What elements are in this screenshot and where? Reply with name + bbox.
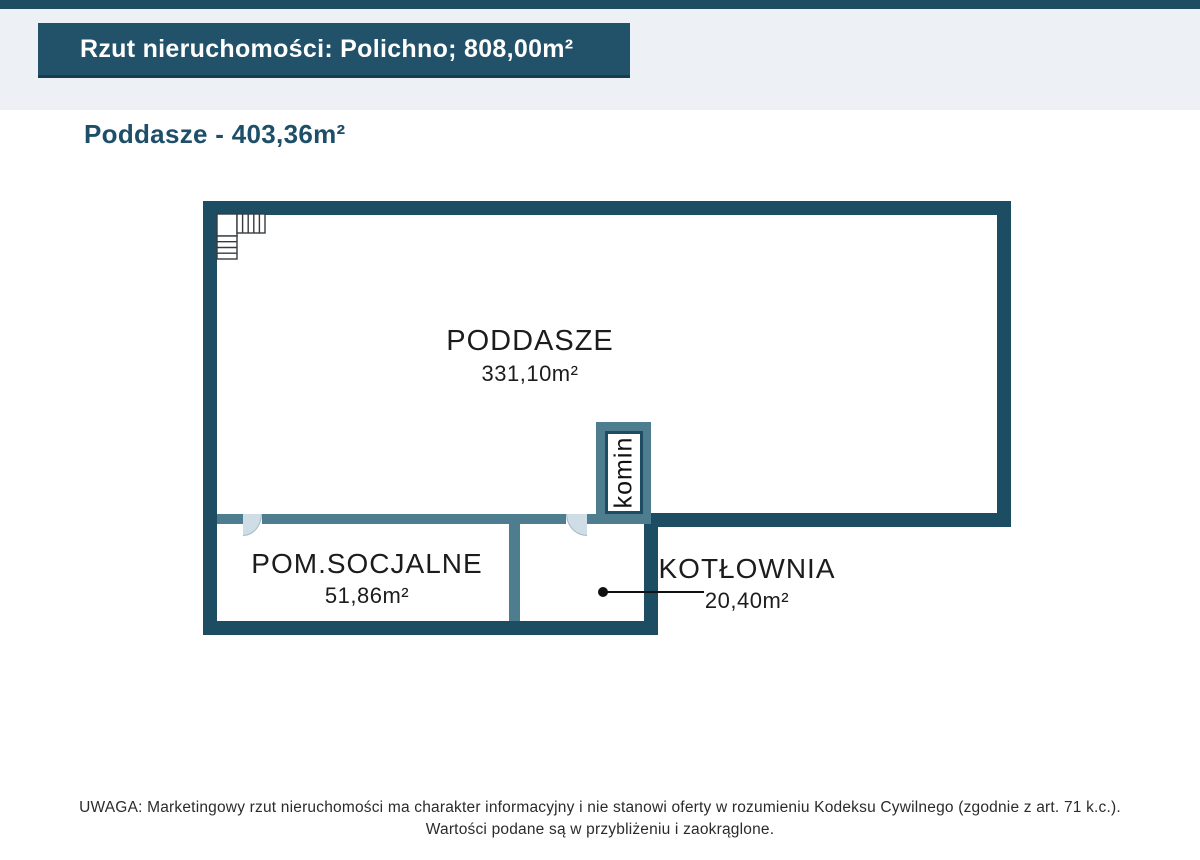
interior-wall-segment	[262, 514, 566, 524]
disclaimer-line-2: Wartości podane są w przybliżeniu i zaok…	[0, 819, 1200, 841]
room-label-poddasze: PODDASZE 331,10m²	[380, 325, 680, 387]
wall-bottom-right-segment	[650, 513, 1011, 527]
room-name: POM.SOCJALNE	[243, 548, 491, 580]
floorplan-page: Rzut nieruchomości: Polichno; 808,00m² P…	[0, 0, 1200, 860]
stairs-icon	[216, 213, 268, 263]
chimney-box: komin	[605, 431, 643, 514]
title-banner: Rzut nieruchomości: Polichno; 808,00m²	[38, 23, 630, 78]
floor-subtitle: Poddasze - 403,36m²	[84, 119, 345, 150]
room-label-kotlownia: KOTŁOWNIA 20,40m²	[658, 553, 836, 614]
door-arc-icon	[566, 514, 587, 536]
top-accent-strip	[0, 0, 1200, 9]
interior-wall-vertical	[509, 523, 520, 621]
room-name: PODDASZE	[380, 325, 680, 358]
interior-wall-segment	[587, 514, 651, 524]
wall-top	[203, 201, 1011, 215]
disclaimer: UWAGA: Marketingowy rzut nieruchomości m…	[0, 797, 1200, 841]
room-name: KOTŁOWNIA	[658, 553, 836, 585]
interior-wall-segment	[217, 514, 243, 524]
room-area: 51,86m²	[243, 583, 491, 609]
door-arc-icon	[243, 514, 262, 536]
chimney-label: komin	[610, 437, 639, 509]
disclaimer-line-1: UWAGA: Marketingowy rzut nieruchomości m…	[0, 797, 1200, 819]
wall-left	[203, 201, 217, 635]
wall-kotlownia-right	[644, 513, 658, 635]
page-title: Rzut nieruchomości: Polichno; 808,00m²	[80, 35, 573, 64]
room-area: 331,10m²	[380, 361, 680, 387]
kotlownia-leader-line	[603, 591, 704, 593]
wall-bottom	[203, 621, 658, 635]
room-label-pom-socjalne: POM.SOCJALNE 51,86m²	[243, 548, 491, 609]
wall-right	[997, 201, 1011, 527]
